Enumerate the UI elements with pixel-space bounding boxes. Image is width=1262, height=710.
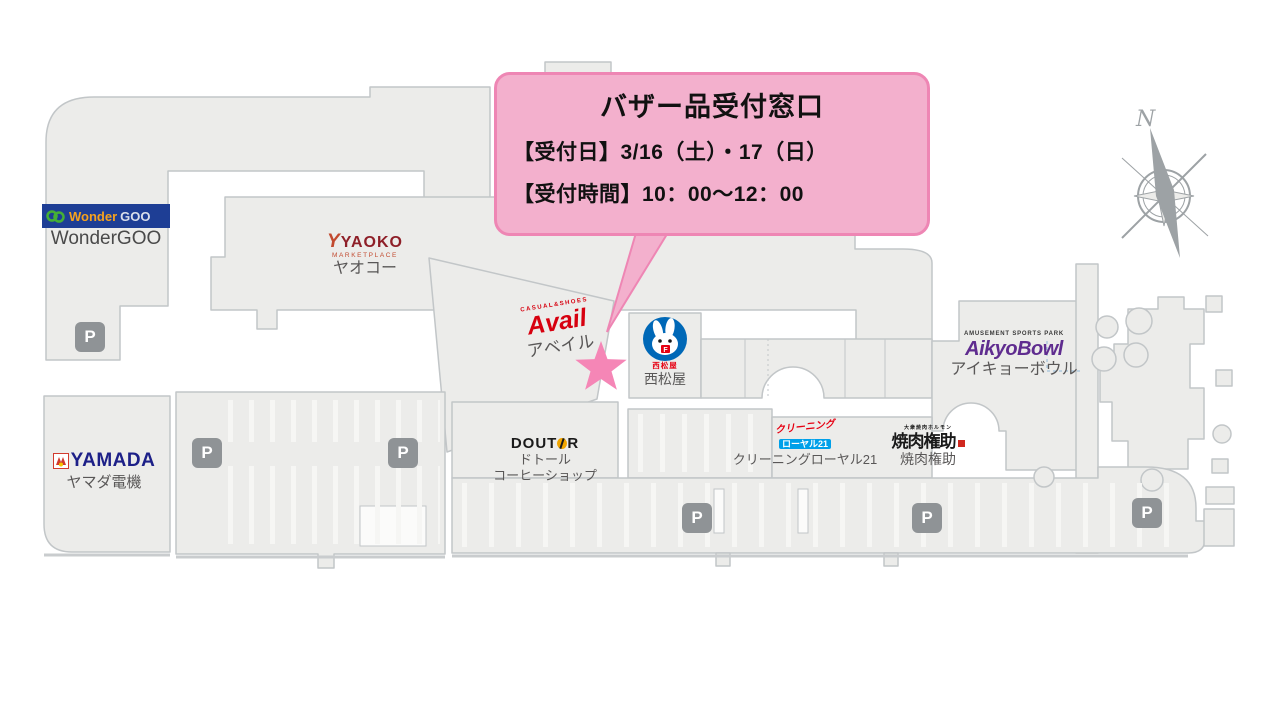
- doutor-name-line2: コーヒーショップ: [462, 469, 628, 484]
- gonsuke-logo: 焼肉権助: [892, 432, 956, 451]
- yaoko-store: YYAOKO MARKETPLACE ヤオコー: [298, 231, 432, 279]
- yaoko-mark-icon: Y: [327, 231, 340, 252]
- parking-icon: P: [682, 503, 712, 533]
- parking-icon: P: [75, 322, 105, 352]
- callout-date-line: 【受付日】3/16（土）・17（日）: [497, 136, 927, 166]
- building-mid-strip: [701, 339, 932, 398]
- gonsuke-name: 焼肉権助: [876, 451, 980, 467]
- small-structure: [1204, 509, 1234, 546]
- yamada-logo: YAMADA: [71, 450, 156, 472]
- wondergoo-chain-icon: [46, 208, 66, 224]
- bazaar-callout-bubble: バザー品受付窓口 【受付日】3/16（土）・17（日） 【受付時間】10：00〜…: [494, 72, 930, 236]
- rabbit-icon: F: [643, 317, 687, 361]
- parking-icon: P: [912, 503, 942, 533]
- aikyobowl-store: AMUSEMENT SPORTS PARK AikyoBowl アイキョーボウル: [938, 331, 1090, 379]
- coffee-bean-icon: [557, 438, 567, 449]
- doutor-logo-right: R: [567, 435, 579, 452]
- nishimatsuya-store: F 西松屋 西松屋: [634, 317, 696, 387]
- aikyobowl-name: アイキョーボウル: [938, 361, 1090, 379]
- yaoko-name: ヤオコー: [298, 260, 432, 278]
- gonsuke-store: 大衆焼肉ホルモン 焼肉権助 焼肉権助: [876, 426, 980, 467]
- doutor-logo-left: DOUT: [511, 435, 558, 452]
- wondergoo-logo: WonderGOO: [42, 204, 170, 228]
- gonsuke-seal-icon: [958, 440, 965, 447]
- mall-map-page: N WonderGOO WonderGOO YYAOKO MARKETPLACE…: [0, 0, 1262, 710]
- yamada-mark-icon: [53, 453, 69, 469]
- wondergoo-name: WonderGOO: [34, 228, 178, 250]
- royal21-logo-chip: ローヤル21: [779, 439, 831, 449]
- wondergoo-logo-wonder: Wonder: [69, 209, 117, 224]
- royal21-name: クリーニングローヤル21: [726, 453, 884, 468]
- nishimatsuya-logo-text: 西松屋: [634, 362, 696, 371]
- small-structure: [1206, 487, 1234, 504]
- wondergoo-logo-goo: GOO: [120, 209, 150, 224]
- doutor-store: DOUTR ドトール コーヒーショップ: [462, 435, 628, 484]
- doutor-name-line1: ドトール: [462, 453, 628, 468]
- parking-icon: P: [192, 438, 222, 468]
- callout-title: バザー品受付窓口: [497, 85, 927, 124]
- compass-north-label: N: [1135, 107, 1156, 132]
- yaoko-logo: YAOKO: [341, 234, 403, 251]
- yamada-store: YAMADA ヤマダ電機: [42, 450, 166, 491]
- callout-time-line: 【受付時間】10：00〜12：00: [497, 178, 927, 208]
- aikyobowl-logo: AikyoBowl: [938, 338, 1090, 361]
- yaoko-subtitle: MARKETPLACE: [298, 252, 432, 259]
- yamada-name: ヤマダ電機: [42, 474, 166, 491]
- parking-icon: P: [1132, 498, 1162, 528]
- royal21-store: クリーニング ローヤル21 クリーニングローヤル21: [726, 422, 884, 468]
- compass-icon: N: [1122, 107, 1208, 258]
- nishimatsuya-name: 西松屋: [634, 371, 696, 387]
- parking-icon: P: [388, 438, 418, 468]
- rabbit-flag-letter: F: [663, 347, 668, 354]
- shadow-lines: [44, 555, 1188, 557]
- aikyobowl-tagline: AMUSEMENT SPORTS PARK: [938, 331, 1090, 338]
